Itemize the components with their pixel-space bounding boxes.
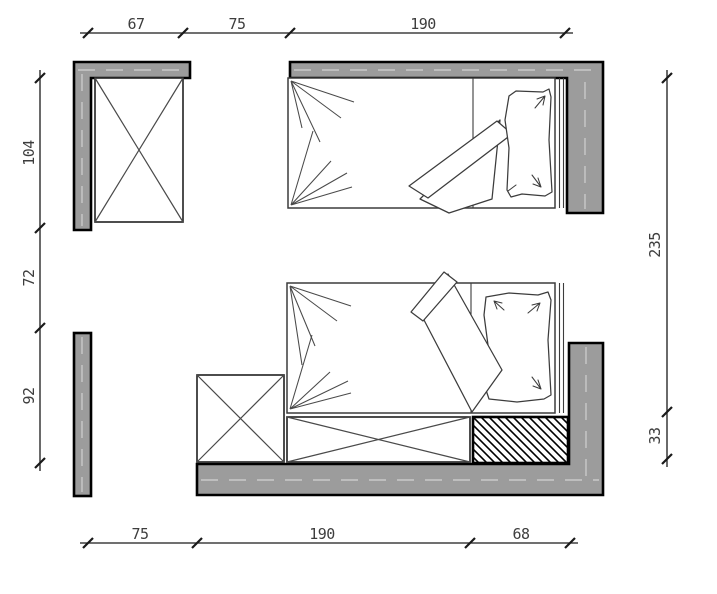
dim-label-top-3: 190 [410,15,436,33]
wardrobe-bottom [197,375,284,462]
dimension-chain-top: 67 75 190 [80,15,573,38]
wall-left [74,333,91,496]
dim-label-bottom-2: 190 [309,525,335,543]
chest-bottom [287,417,470,462]
bed-top [288,78,564,213]
dim-label-left-3: 92 [20,387,38,404]
dim-label-bottom-3: 68 [512,525,530,543]
dim-label-left-2: 72 [20,269,38,286]
hatched-block [473,417,568,463]
dimension-chain-right: 235 33 [646,70,672,467]
dim-label-top-2: 75 [228,15,245,33]
floor-plan-canvas: 67 75 190 104 72 92 235 33 75 190 68 [0,0,717,594]
dimension-chain-bottom: 75 190 68 [80,525,578,548]
dim-label-right-2: 33 [646,427,664,444]
dimension-chain-left: 104 72 92 [20,70,45,471]
bed-bottom [287,272,564,413]
wardrobe-top-left [95,78,183,222]
floor-plan-drawing: 67 75 190 104 72 92 235 33 75 190 68 [0,0,717,594]
hatched-block-outline [473,417,568,463]
dim-label-right-1: 235 [646,232,664,258]
dim-label-left-1: 104 [20,140,38,166]
dim-label-bottom-1: 75 [131,525,148,543]
dim-label-top-1: 67 [127,15,144,33]
pillow [484,292,551,402]
pillow [505,89,552,197]
